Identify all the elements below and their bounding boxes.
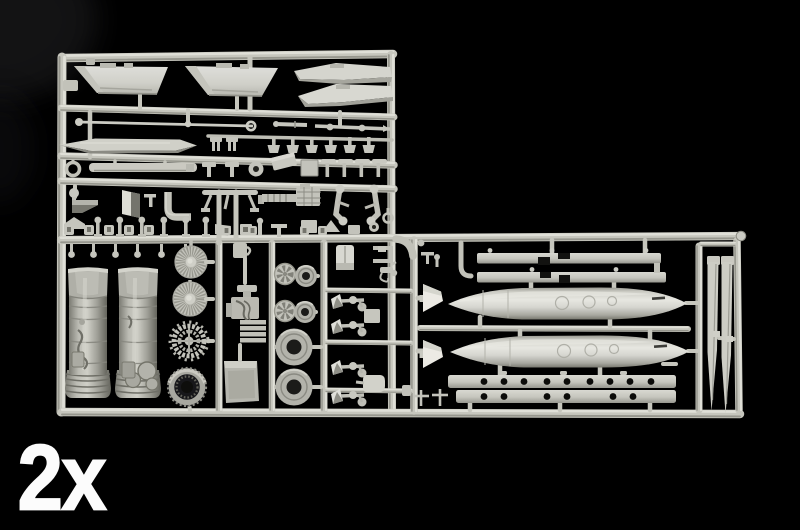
svg-text:2x: 2x [18,426,108,530]
